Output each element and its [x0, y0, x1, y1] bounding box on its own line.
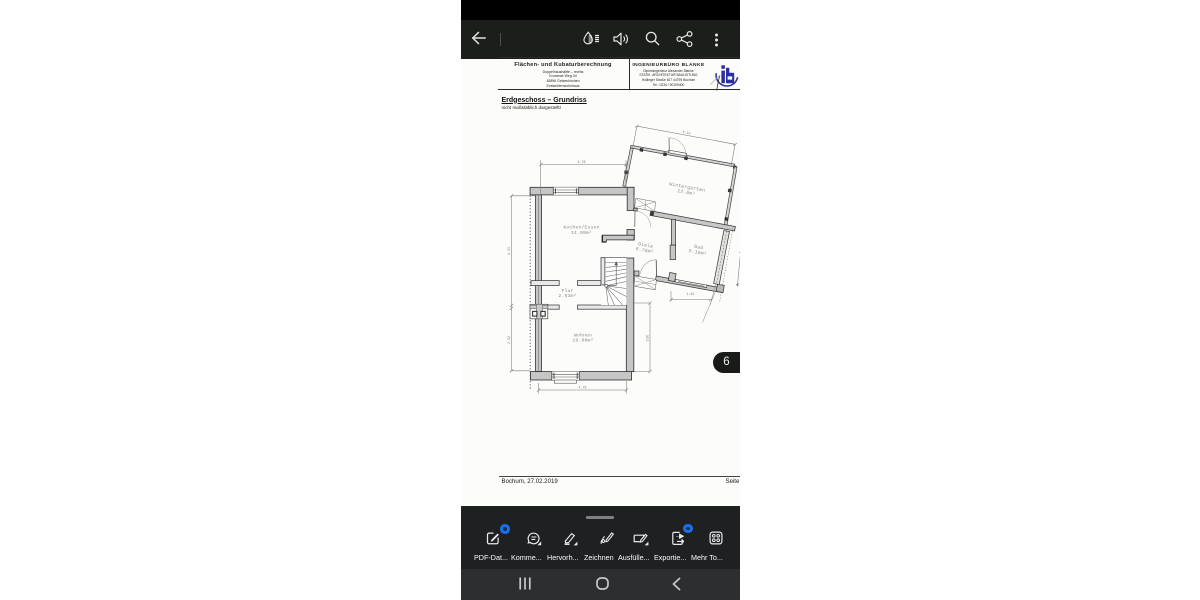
- svg-text:Kochen/Essen: Kochen/Essen: [563, 225, 599, 231]
- svg-text:4.76: 4.76: [578, 160, 586, 164]
- svg-text:14.99m²: 14.99m²: [571, 230, 592, 236]
- svg-text:1.61: 1.61: [687, 292, 695, 296]
- svg-text:19.00m²: 19.00m²: [572, 338, 593, 344]
- svg-text:2.63m²: 2.63m²: [558, 293, 576, 299]
- svg-text:2.42: 2.42: [507, 336, 511, 344]
- svg-text:4.31: 4.31: [507, 247, 511, 255]
- svg-text:4.76: 4.76: [579, 385, 587, 389]
- svg-text:3.90: 3.90: [646, 335, 650, 342]
